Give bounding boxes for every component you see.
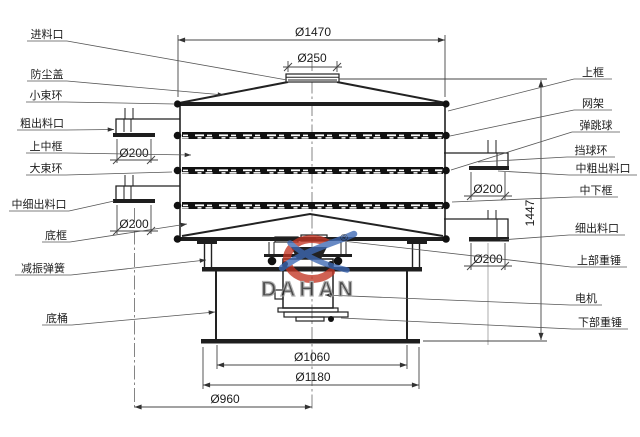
label-ball-stop-ring: 挡球环 (575, 143, 608, 157)
brand-name: DAHAN (261, 278, 357, 301)
registered-mark: ® (340, 233, 348, 244)
outlet-coarse (113, 108, 180, 137)
screen-deck-3 (182, 202, 443, 209)
lower-weight (278, 308, 348, 322)
screen-deck-2 (182, 167, 443, 174)
part-labels-right: 上框 网架 弹跳球 挡球环 中粗出料口 中下框 细出料口 上部重锤 电机 下部重… (575, 66, 631, 329)
leader-lines-left (9, 41, 287, 325)
feed-inlet-port (286, 74, 339, 82)
label-coarse-outlet: 粗出料口 (20, 116, 64, 130)
dim-base-top: Ø1060 (217, 345, 407, 369)
label-base-drum: 底桶 (46, 311, 68, 325)
label-fine-outlet: 细出料口 (575, 221, 619, 235)
label-upper-weight: 上部重锤 (577, 253, 621, 267)
dim-height: 1447 (339, 79, 547, 341)
outlet-fine (444, 210, 509, 242)
outlet-medium-fine (113, 175, 180, 203)
dim-outlet-left-2: Ø200 (110, 205, 158, 235)
label-bouncing-ball: 弹跳球 (580, 118, 613, 132)
label-large-clamp-ring: 大束环 (30, 161, 63, 175)
label-upper-frame: 上框 (582, 66, 604, 79)
label-upper-middle-frame: 上中框 (30, 140, 63, 153)
dim-text-outlet-l1: Ø200 (119, 146, 149, 160)
dim-outlet-circle: Ø960 (135, 392, 313, 407)
label-damping-spring: 减振弹簧 (21, 261, 65, 275)
dim-text-flange: Ø1470 (295, 25, 331, 39)
dim-text-inlet: Ø250 (297, 51, 327, 65)
label-medium-coarse-outlet: 中粗出料口 (576, 161, 631, 175)
dim-text-outlet-l2: Ø200 (119, 217, 149, 231)
dim-inlet: Ø250 (283, 51, 342, 72)
dim-outlet-left-1: Ø200 (110, 139, 158, 164)
dim-outlet-right-1: Ø200 (464, 172, 512, 200)
label-medium-fine-outlet: 中细出料口 (12, 197, 67, 211)
label-dust-cover: 防尘盖 (31, 67, 64, 81)
label-feed-inlet: 进料口 (31, 27, 64, 41)
bottom-cone (182, 214, 443, 236)
drawing-sheet: Ø1470 Ø250 Ø200 Ø200 Ø200 Ø200 (0, 0, 640, 437)
label-lower-weight: 下部重锤 (578, 315, 622, 329)
upper-rim (175, 102, 448, 106)
label-motor: 电机 (575, 291, 597, 305)
screen-decks (182, 132, 443, 209)
dim-text-base-bottom: Ø1180 (295, 370, 330, 384)
part-labels-left: 进料口 防尘盖 小束环 粗出料口 上中框 大束环 中细出料口 底框 减振弹簧 底… (12, 27, 69, 325)
dim-text-height: 1447 (523, 199, 537, 226)
dim-text-base-top: Ø1060 (294, 350, 330, 364)
label-small-clamp-ring: 小束环 (30, 89, 63, 102)
dim-text-outlet-r1: Ø200 (473, 182, 503, 196)
label-mesh-frame: 网架 (582, 97, 604, 110)
label-bottom-frame: 底框 (45, 228, 67, 242)
label-middle-lower-frame: 中下框 (580, 184, 613, 197)
vibrating-sieve-drawing: Ø1470 Ø250 Ø200 Ø200 Ø200 Ø200 (0, 0, 640, 437)
screen-deck-1 (182, 132, 443, 139)
dim-text-outlet-circle: Ø960 (210, 392, 240, 406)
